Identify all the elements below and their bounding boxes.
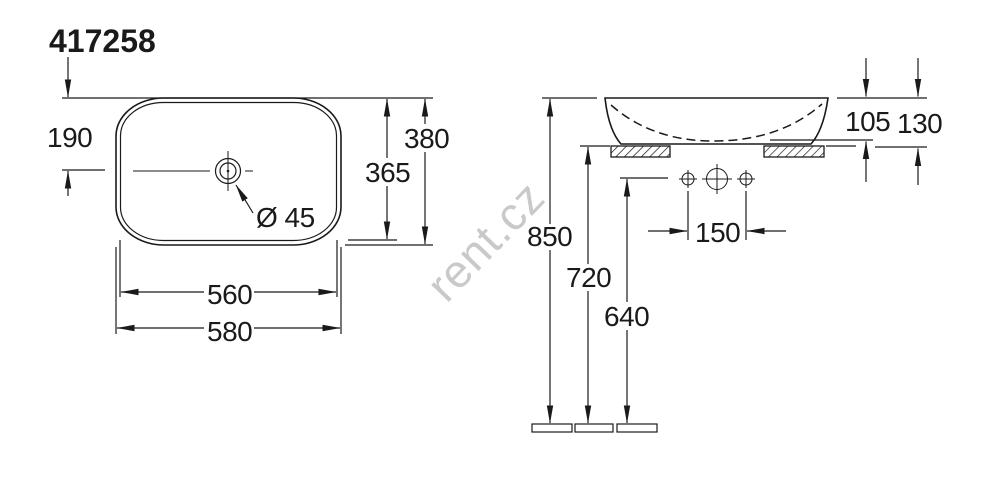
dim-label-850: 850: [527, 221, 572, 252]
dimension-380: 380: [404, 99, 449, 244]
floor-reference-blocks: [532, 424, 657, 432]
top-view: 417258 190 365 380: [47, 23, 449, 347]
dimension-150: 150: [648, 217, 786, 248]
dim-label-190: 190: [47, 122, 92, 153]
dim-label-560: 560: [207, 279, 252, 310]
dimension-560: 560: [121, 279, 336, 310]
dim-label-drain: Ø 45: [256, 202, 315, 233]
dim-label-150: 150: [695, 217, 740, 248]
dimension-580: 580: [117, 316, 340, 347]
dim-label-130: 130: [897, 108, 942, 139]
dim-label-640: 640: [604, 301, 649, 332]
tap-holes: [679, 164, 755, 194]
dim-label-580: 580: [207, 316, 252, 347]
drain-hole: [133, 151, 253, 191]
dim-label-365: 365: [365, 157, 410, 188]
dim-label-105: 105: [845, 106, 890, 137]
front-view: 850 720 640 150 105: [527, 58, 942, 432]
model-number-label: 417258: [49, 23, 156, 59]
basin-bowl-dashed: [611, 104, 822, 141]
dimension-190: 190: [47, 122, 92, 196]
dimension-365: 365: [365, 99, 410, 239]
dimension-640: 640: [604, 179, 649, 423]
basin-profile: [605, 98, 828, 144]
dimension-105: 105: [845, 58, 890, 182]
dim-label-380: 380: [404, 123, 449, 154]
basin-dimension-drawing: rent.cz 417258: [0, 0, 999, 490]
dimension-130: 130: [897, 58, 942, 185]
technical-drawing-page: rent.cz 417258: [0, 0, 999, 490]
dimension-850: 850: [527, 99, 572, 423]
countertop-section: [611, 146, 824, 157]
dimension-drain-diameter: Ø 45: [236, 185, 315, 233]
dim-label-720: 720: [566, 262, 611, 293]
dimension-720: 720: [566, 147, 611, 423]
